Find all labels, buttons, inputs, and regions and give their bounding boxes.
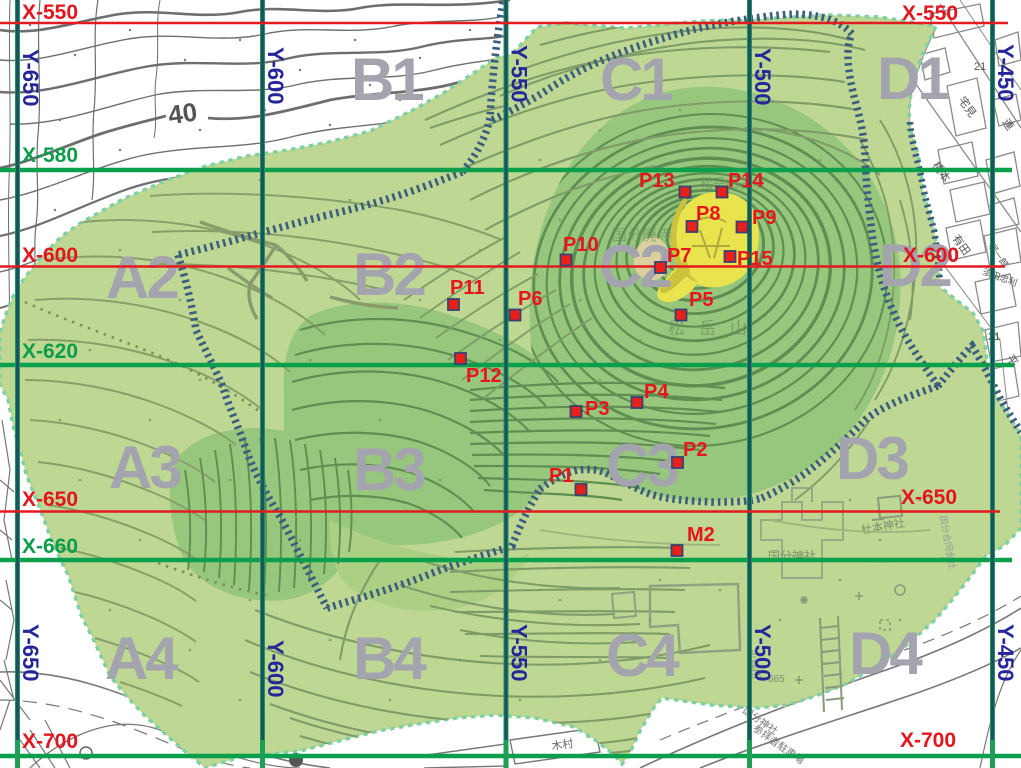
svg-text:C1: C1 xyxy=(600,46,672,113)
svg-text:B1: B1 xyxy=(351,46,423,113)
svg-text:P14: P14 xyxy=(728,170,764,192)
svg-text:D1: D1 xyxy=(877,45,949,112)
svg-text:X-550: X-550 xyxy=(22,1,78,24)
svg-text:P5: P5 xyxy=(689,289,713,311)
svg-text:X-550: X-550 xyxy=(902,2,958,25)
svg-text:D4: D4 xyxy=(849,620,923,687)
svg-text:P2: P2 xyxy=(683,439,707,461)
svg-text:A4: A4 xyxy=(105,625,179,692)
svg-text:P10: P10 xyxy=(563,234,599,256)
svg-text:B4: B4 xyxy=(353,625,427,692)
svg-text:Y-550: Y-550 xyxy=(507,624,532,682)
svg-text:X-650: X-650 xyxy=(901,486,957,509)
svg-text:Y-600: Y-600 xyxy=(263,47,288,105)
svg-text:P13: P13 xyxy=(639,170,675,192)
svg-text:X-660: X-660 xyxy=(22,535,78,558)
svg-text:X-700: X-700 xyxy=(900,729,956,752)
svg-text:X-600: X-600 xyxy=(903,244,959,267)
svg-text:C3: C3 xyxy=(606,432,678,499)
svg-text:X-620: X-620 xyxy=(22,340,78,363)
svg-text:Y-450: Y-450 xyxy=(993,44,1018,102)
svg-text:P12: P12 xyxy=(466,365,502,387)
svg-text:B3: B3 xyxy=(353,436,425,503)
svg-text:A2: A2 xyxy=(106,244,177,311)
svg-text:D3: D3 xyxy=(836,425,908,492)
svg-text:21: 21 xyxy=(974,61,986,73)
svg-text:Y-650: Y-650 xyxy=(18,624,43,682)
svg-text:P15: P15 xyxy=(737,248,773,270)
svg-text:Y-500: Y-500 xyxy=(750,48,775,106)
svg-text:P6: P6 xyxy=(518,288,542,310)
svg-text:X-600: X-600 xyxy=(22,244,78,267)
svg-text:C4: C4 xyxy=(606,622,680,689)
svg-text:P11: P11 xyxy=(450,277,484,299)
svg-text:P3: P3 xyxy=(585,398,609,420)
svg-text:Y-550: Y-550 xyxy=(507,45,532,103)
svg-text:Y-500: Y-500 xyxy=(750,624,775,682)
svg-text:Y-650: Y-650 xyxy=(18,49,43,107)
svg-text:X-650: X-650 xyxy=(22,488,78,511)
svg-text:X-580: X-580 xyxy=(22,144,78,167)
svg-text:Y-600: Y-600 xyxy=(263,640,288,698)
svg-text:P7: P7 xyxy=(667,245,691,267)
svg-text:X-700: X-700 xyxy=(22,730,78,753)
svg-text:P1: P1 xyxy=(549,465,573,487)
svg-text:B2: B2 xyxy=(353,241,424,308)
svg-text:M2: M2 xyxy=(687,524,715,546)
svg-text:Y-450: Y-450 xyxy=(993,624,1018,682)
svg-text:A3: A3 xyxy=(109,434,181,501)
svg-text:P4: P4 xyxy=(644,381,669,403)
svg-text:P8: P8 xyxy=(696,203,720,225)
svg-text:40: 40 xyxy=(166,96,199,130)
svg-text:P9: P9 xyxy=(752,207,776,229)
